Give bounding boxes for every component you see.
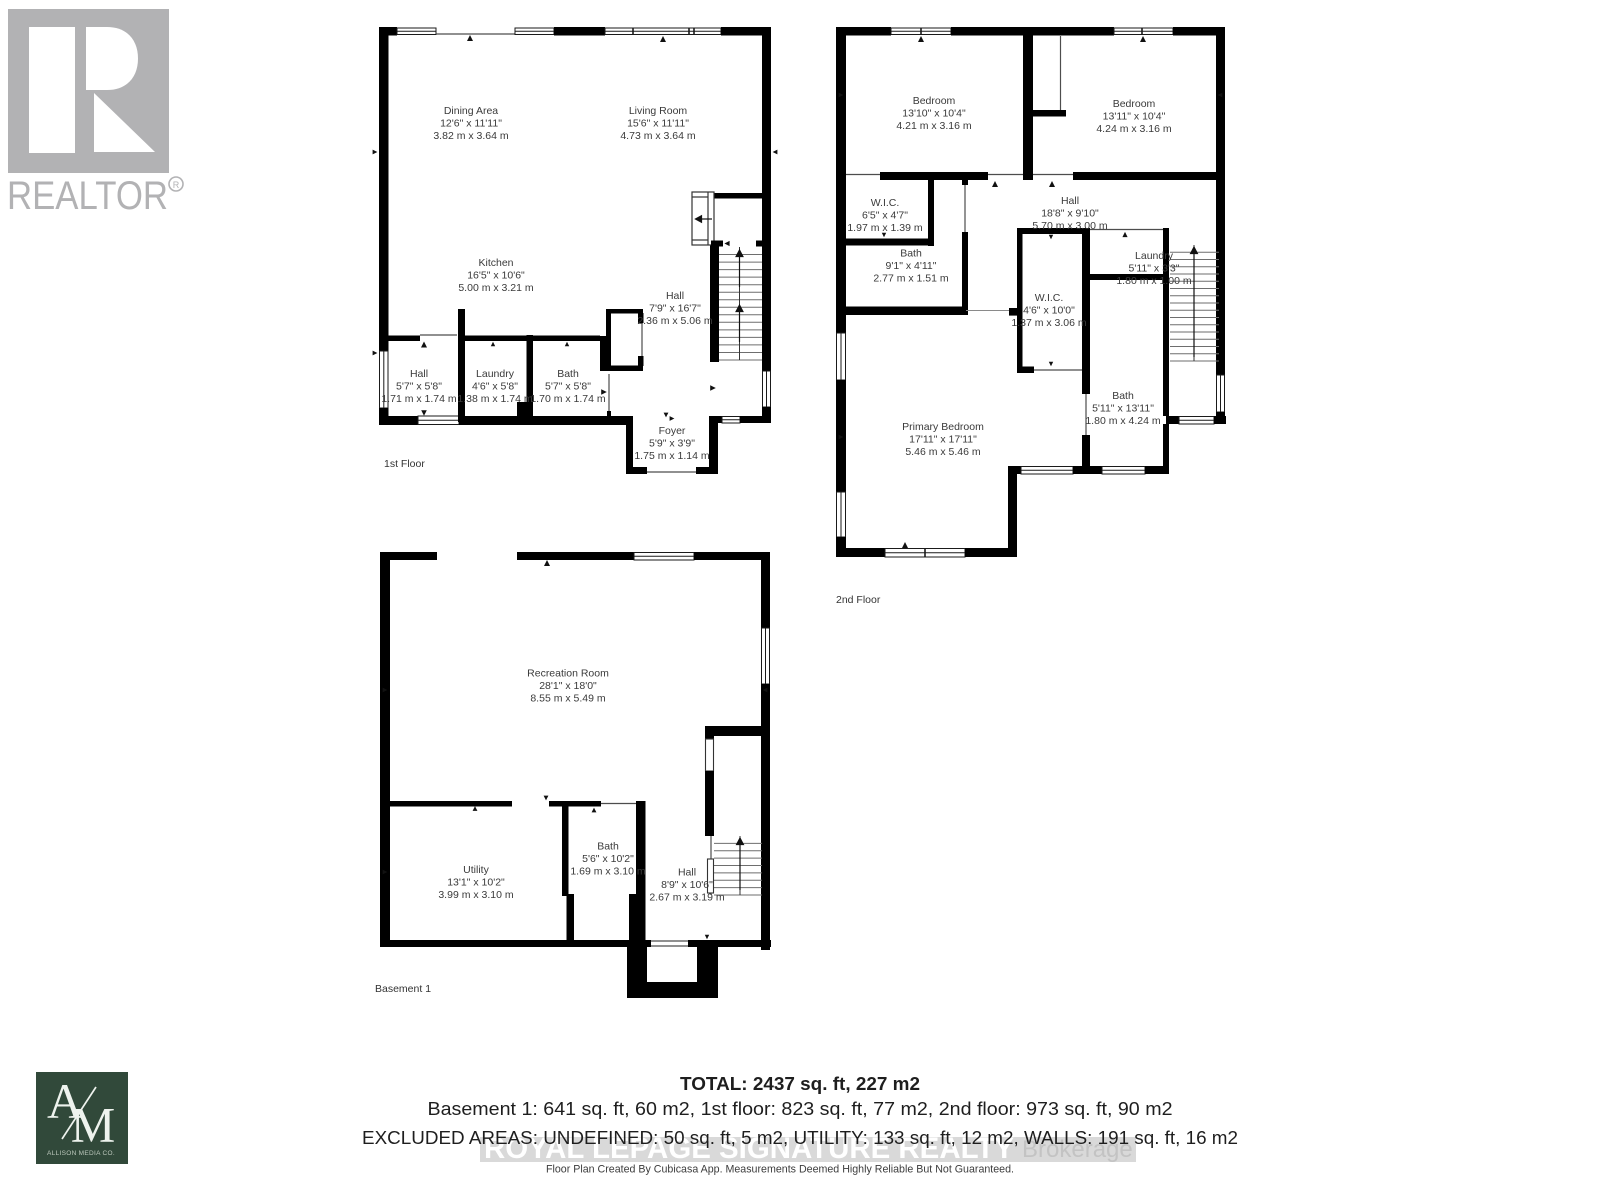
svg-text:ALLISON MEDIA CO.: ALLISON MEDIA CO. (47, 1150, 115, 1157)
svg-text:4'6" x 5'8": 4'6" x 5'8" (472, 381, 518, 393)
svg-text:5.00 m x 3.21 m: 5.00 m x 3.21 m (458, 282, 534, 294)
svg-text:1.38 m x 1.74 m: 1.38 m x 1.74 m (457, 393, 533, 405)
svg-text:1.37 m x 3.06 m: 1.37 m x 3.06 m (1011, 317, 1087, 329)
svg-text:1.71 m x 1.74 m: 1.71 m x 1.74 m (381, 393, 457, 405)
svg-text:Basement 1: 641 sq. ft, 60 m2,: Basement 1: 641 sq. ft, 60 m2, 1st floor… (428, 1099, 1173, 1119)
svg-text:5'7" x 5'8": 5'7" x 5'8" (545, 381, 591, 393)
svg-text:4'6" x 10'0": 4'6" x 10'0" (1023, 305, 1075, 317)
svg-text:Bath: Bath (557, 368, 579, 380)
svg-text:5'9" x 3'9": 5'9" x 3'9" (649, 438, 695, 450)
svg-text:17'11" x 17'11": 17'11" x 17'11" (909, 434, 977, 446)
svg-text:5.46 m x 5.46 m: 5.46 m x 5.46 m (905, 446, 981, 458)
svg-text:6'5" x 4'7": 6'5" x 4'7" (862, 210, 908, 222)
svg-text:W.I.C.: W.I.C. (1035, 292, 1064, 304)
svg-text:4.73 m x 3.64 m: 4.73 m x 3.64 m (620, 130, 696, 142)
svg-text:M: M (71, 1097, 115, 1153)
svg-text:5'7" x 5'8": 5'7" x 5'8" (396, 381, 442, 393)
svg-text:Primary Bedroom: Primary Bedroom (902, 421, 984, 433)
svg-text:Living Room: Living Room (629, 105, 688, 117)
svg-text:REALTOR: REALTOR (7, 174, 168, 218)
svg-text:Bath: Bath (597, 841, 619, 853)
svg-text:8'9" x 10'6": 8'9" x 10'6" (661, 879, 713, 891)
svg-text:Hall: Hall (410, 368, 428, 380)
svg-text:13'1" x 10'2": 13'1" x 10'2" (447, 877, 505, 889)
svg-text:7'9" x 16'7": 7'9" x 16'7" (649, 303, 701, 315)
svg-text:Laundry: Laundry (476, 368, 515, 380)
svg-text:5'11" x 13'11": 5'11" x 13'11" (1092, 403, 1154, 415)
svg-text:R: R (173, 180, 180, 190)
svg-text:Kitchen: Kitchen (478, 257, 513, 269)
svg-text:5'6" x 10'2": 5'6" x 10'2" (582, 853, 634, 865)
svg-text:9'1" x 4'11": 9'1" x 4'11" (886, 260, 937, 272)
svg-text:5'11" x 3'3": 5'11" x 3'3" (1129, 263, 1180, 275)
svg-text:15'6" x 11'11": 15'6" x 11'11" (627, 118, 689, 130)
svg-text:Hall: Hall (1061, 195, 1079, 207)
svg-text:1.80 m x 4.24 m: 1.80 m x 4.24 m (1085, 415, 1161, 427)
svg-text:Basement 1: Basement 1 (375, 983, 431, 995)
svg-text:3.82 m x 3.64 m: 3.82 m x 3.64 m (433, 130, 509, 142)
svg-text:18'8" x 9'10": 18'8" x 9'10" (1041, 208, 1099, 220)
svg-text:Hall: Hall (666, 290, 684, 302)
svg-text:13'10" x 10'4": 13'10" x 10'4" (902, 108, 966, 120)
svg-text:4.21 m x 3.16 m: 4.21 m x 3.16 m (896, 120, 972, 132)
svg-text:Bath: Bath (900, 248, 922, 260)
svg-text:1.97 m x 1.39 m: 1.97 m x 1.39 m (847, 222, 923, 234)
svg-text:Bedroom: Bedroom (913, 95, 956, 107)
svg-text:Utility: Utility (463, 864, 489, 876)
svg-text:4.24 m x 3.16 m: 4.24 m x 3.16 m (1096, 123, 1172, 135)
svg-text:TOTAL: 2437 sq. ft, 227 m2: TOTAL: 2437 sq. ft, 227 m2 (680, 1074, 920, 1094)
svg-text:1.69 m x 3.10 m: 1.69 m x 3.10 m (570, 866, 646, 878)
svg-text:16'5" x 10'6": 16'5" x 10'6" (467, 270, 525, 282)
svg-text:8.55 m x 5.49 m: 8.55 m x 5.49 m (530, 693, 606, 705)
svg-text:2.77 m x 1.51 m: 2.77 m x 1.51 m (873, 273, 949, 285)
svg-text:Bedroom: Bedroom (1113, 98, 1156, 110)
svg-text:Dining Area: Dining Area (444, 105, 498, 117)
svg-text:1.70 m x 1.74 m: 1.70 m x 1.74 m (530, 393, 606, 405)
svg-text:Hall: Hall (678, 867, 696, 879)
svg-text:1.80 m x 1.00 m: 1.80 m x 1.00 m (1116, 275, 1192, 287)
svg-text:28'1" x 18'0": 28'1" x 18'0" (539, 680, 597, 692)
svg-text:Foyer: Foyer (659, 425, 686, 437)
svg-text:EXCLUDED AREAS: UNDEFINED: 50: EXCLUDED AREAS: UNDEFINED: 50 sq. ft, 5 … (362, 1128, 1238, 1148)
svg-text:Recreation Room: Recreation Room (527, 668, 609, 680)
svg-text:1st Floor: 1st Floor (384, 458, 425, 470)
svg-text:2.36 m x 5.06 m: 2.36 m x 5.06 m (637, 315, 713, 327)
svg-text:W.I.C.: W.I.C. (871, 197, 900, 209)
svg-text:2nd Floor: 2nd Floor (836, 594, 881, 606)
svg-text:12'6" x 11'11": 12'6" x 11'11" (440, 118, 502, 130)
svg-text:Floor Plan Created By Cubicasa: Floor Plan Created By Cubicasa App. Meas… (546, 1164, 1014, 1176)
svg-text:13'11" x 10'4": 13'11" x 10'4" (1103, 111, 1166, 123)
svg-text:5.70 m x 3.00 m: 5.70 m x 3.00 m (1032, 220, 1108, 232)
svg-text:Bath: Bath (1112, 390, 1134, 402)
svg-text:2.67 m x 3.19 m: 2.67 m x 3.19 m (649, 892, 725, 904)
svg-text:3.99 m x 3.10 m: 3.99 m x 3.10 m (438, 889, 514, 901)
svg-text:1.75 m x 1.14 m: 1.75 m x 1.14 m (634, 450, 710, 462)
svg-text:Laundry: Laundry (1135, 250, 1174, 262)
